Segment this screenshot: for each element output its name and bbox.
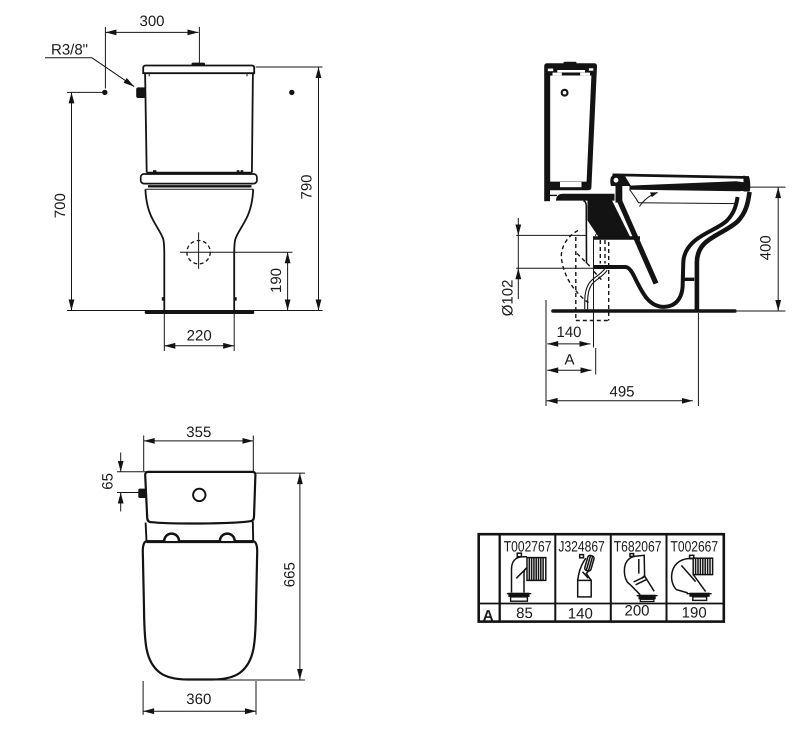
svg-text:T002667: T002667 [671,538,719,555]
svg-text:R3/8": R3/8" [51,42,88,59]
svg-text:T002767: T002767 [504,538,552,555]
svg-text:700: 700 [52,193,69,218]
svg-text:190: 190 [682,605,707,622]
svg-text:790: 790 [299,174,316,199]
svg-text:220: 220 [187,328,212,345]
svg-text:300: 300 [139,13,164,30]
svg-text:200: 200 [624,603,649,620]
svg-text:140: 140 [556,324,581,341]
svg-text:400: 400 [758,235,775,260]
svg-text:140: 140 [568,605,593,622]
svg-text:A: A [483,608,494,625]
svg-text:85: 85 [516,605,533,622]
svg-text:355: 355 [186,424,211,441]
svg-text:Ø102: Ø102 [500,280,517,317]
svg-text:360: 360 [186,691,211,708]
svg-text:A: A [564,352,574,369]
svg-text:495: 495 [609,384,634,401]
svg-text:65: 65 [100,473,117,490]
svg-text:T682067: T682067 [614,538,662,555]
svg-text:190: 190 [268,268,285,293]
svg-text:J324867: J324867 [558,538,604,555]
svg-text:665: 665 [282,562,299,587]
